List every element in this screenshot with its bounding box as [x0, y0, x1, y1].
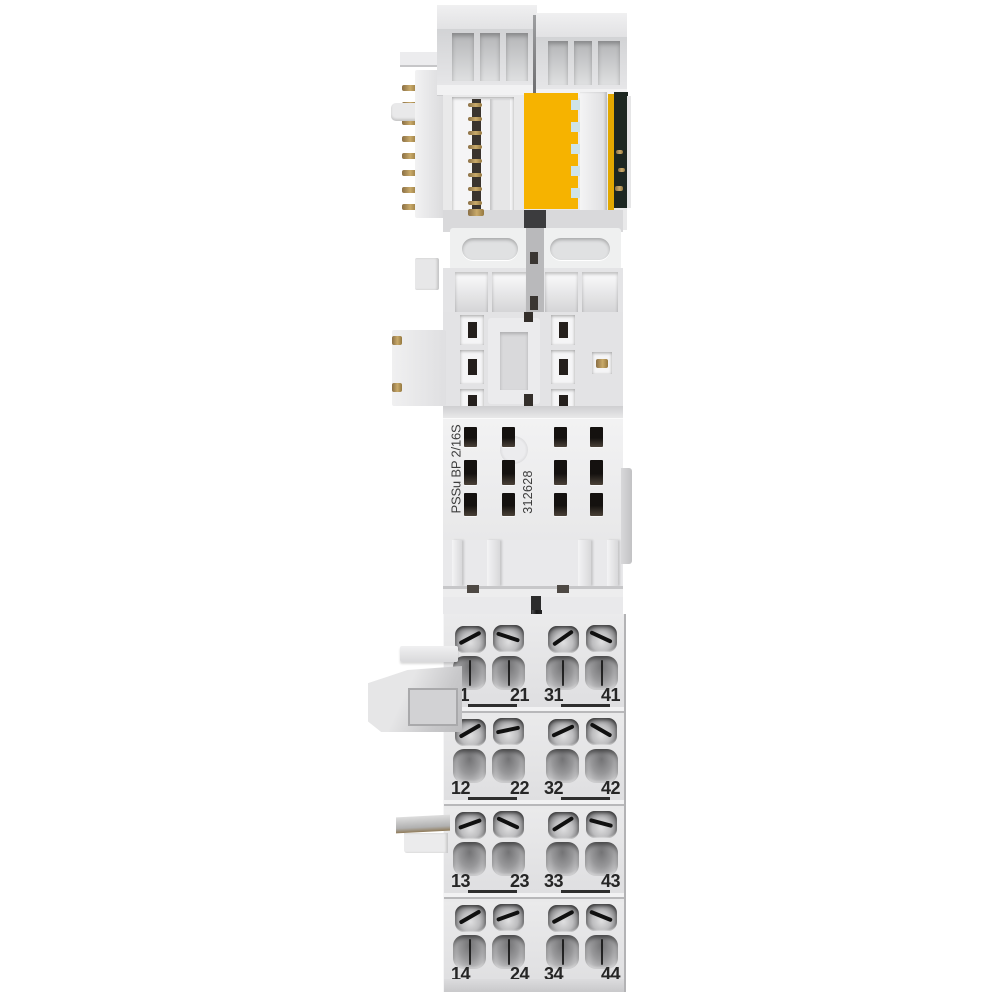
cap-slot — [506, 33, 528, 81]
contact — [559, 322, 568, 338]
yellow-notch — [571, 100, 580, 110]
vent-hole — [590, 493, 603, 516]
pcb-edge-white — [627, 96, 631, 208]
contact-slot — [592, 352, 612, 374]
mounting-foot — [368, 666, 462, 732]
release-tab — [487, 540, 500, 586]
contact — [559, 359, 568, 375]
ground-tab-base — [404, 833, 448, 853]
contact-chip — [468, 209, 484, 216]
pcb-solder-pad — [618, 168, 625, 172]
header-pin — [468, 187, 482, 191]
cap-slot — [480, 33, 500, 81]
terminal-number: 32 — [544, 779, 563, 797]
center-molding-recess — [500, 332, 528, 390]
contact-slot — [460, 350, 484, 384]
transition-panel — [443, 540, 623, 614]
pcb-solder-pad — [616, 150, 623, 154]
screw-terminal — [493, 904, 524, 931]
foot-recess — [408, 688, 458, 726]
vent-hole — [502, 460, 515, 485]
screw-terminal — [455, 626, 486, 653]
ground-tab — [396, 815, 450, 834]
terminal-number: 23 — [510, 872, 529, 890]
mid-body-shadow — [443, 406, 623, 418]
screw-terminal — [548, 905, 579, 932]
screw-terminal — [548, 812, 579, 839]
screw-terminal — [493, 811, 524, 838]
terminal-quad: 13 23 — [446, 800, 531, 893]
mid-band-notch — [524, 210, 546, 230]
terminal-quad: 33 43 — [541, 800, 622, 893]
label-panel: PSSu BP 2/16S 312628 — [443, 418, 623, 541]
vent-hole — [464, 493, 477, 516]
yellow-relay-block — [524, 93, 578, 209]
connector-window — [455, 272, 488, 314]
protrusion-pin — [392, 336, 402, 345]
terminal-number: 33 — [544, 872, 563, 890]
screw-terminal — [493, 625, 524, 652]
vent-hole — [502, 427, 515, 447]
pill-slot — [550, 238, 610, 260]
terminal-row-1: 11 21 31 41 — [444, 614, 624, 707]
channel-notch — [530, 252, 538, 264]
terminal-block: 11 21 31 41 12 22 — [443, 614, 626, 992]
header-pin — [468, 131, 482, 135]
terminal-number: 21 — [510, 686, 529, 704]
pcb-solder-pad — [615, 186, 623, 191]
screw-terminal — [455, 905, 486, 932]
left-tower-cap-top — [437, 5, 537, 29]
product-label: PSSu BP 2/16S — [449, 425, 464, 514]
terminal-number: 41 — [601, 686, 620, 704]
terminal-row-2: 12 22 32 42 — [444, 707, 624, 800]
contact — [468, 359, 477, 375]
vent-hole — [464, 460, 477, 485]
terminal-number: 43 — [601, 872, 620, 890]
header-pin — [468, 145, 482, 149]
bottom-lip — [444, 979, 624, 992]
terminal-quad: 31 41 — [541, 614, 622, 707]
vent-hole — [502, 493, 515, 516]
connector-window — [492, 272, 528, 314]
contact — [596, 359, 608, 368]
terminal-quad: 14 24 — [446, 893, 531, 986]
terminal-quad: 34 44 — [541, 893, 622, 986]
latch-slot — [557, 585, 569, 593]
screw-terminal — [586, 718, 617, 745]
side-hook — [415, 258, 439, 290]
vent-hole — [590, 460, 603, 485]
release-tab — [578, 540, 591, 586]
header-pin — [468, 117, 482, 121]
header-pin — [468, 159, 482, 163]
screw-terminal — [493, 718, 524, 745]
screw-terminal — [586, 904, 617, 931]
yellow-notch — [571, 144, 580, 154]
vent-hole — [590, 427, 603, 447]
header-pin — [468, 173, 482, 177]
cap-slot — [452, 33, 474, 81]
connector-window — [582, 272, 618, 314]
header-pin — [468, 103, 482, 107]
release-tab — [607, 540, 618, 586]
cap-slot — [548, 41, 568, 85]
right-ridge — [621, 468, 632, 564]
terminal-number: 31 — [544, 686, 563, 704]
terminal-number: 12 — [451, 779, 470, 797]
screw-terminal — [548, 626, 579, 653]
left-tower-rib — [490, 99, 510, 213]
yellow-notch — [571, 166, 580, 176]
contact-slot — [551, 315, 575, 345]
cap-slot — [574, 41, 592, 85]
vent-hole — [464, 427, 477, 447]
terminal-row-3: 13 23 33 43 — [444, 800, 624, 893]
yellow-notch — [571, 122, 580, 132]
side-nub — [391, 103, 418, 121]
connector-window — [545, 272, 578, 314]
contact — [468, 322, 477, 338]
contact-slot — [460, 315, 484, 345]
terminal-number: 42 — [601, 779, 620, 797]
screw-terminal — [586, 811, 617, 838]
contact-slot — [551, 350, 575, 384]
foot-bar — [400, 646, 458, 662]
molding-notch — [524, 312, 533, 322]
pill-slot — [462, 238, 518, 260]
screw-terminal — [586, 625, 617, 652]
right-tower-bar — [580, 92, 607, 214]
vent-hole — [554, 493, 567, 516]
latch-slot — [467, 585, 479, 593]
part-number: 312628 — [521, 470, 535, 514]
protrusion-pin — [392, 383, 402, 392]
terminal-number: 13 — [451, 872, 470, 890]
screw-terminal — [455, 812, 486, 839]
screw-terminal — [548, 719, 579, 746]
right-tower-cap-top — [536, 13, 627, 37]
terminal-row-4: 14 24 34 44 — [444, 893, 624, 986]
yellow-notch — [571, 188, 580, 198]
photo-background: PSSu BP 2/16S 312628 — [0, 0, 1000, 1000]
terminal-number: 22 — [510, 779, 529, 797]
vent-hole — [554, 427, 567, 447]
channel-notch — [530, 296, 538, 310]
header-pin — [468, 201, 482, 205]
terminal-quad: 32 42 — [541, 707, 622, 800]
release-tab — [452, 540, 462, 586]
vent-hole — [554, 460, 567, 485]
cap-slot — [598, 41, 620, 85]
